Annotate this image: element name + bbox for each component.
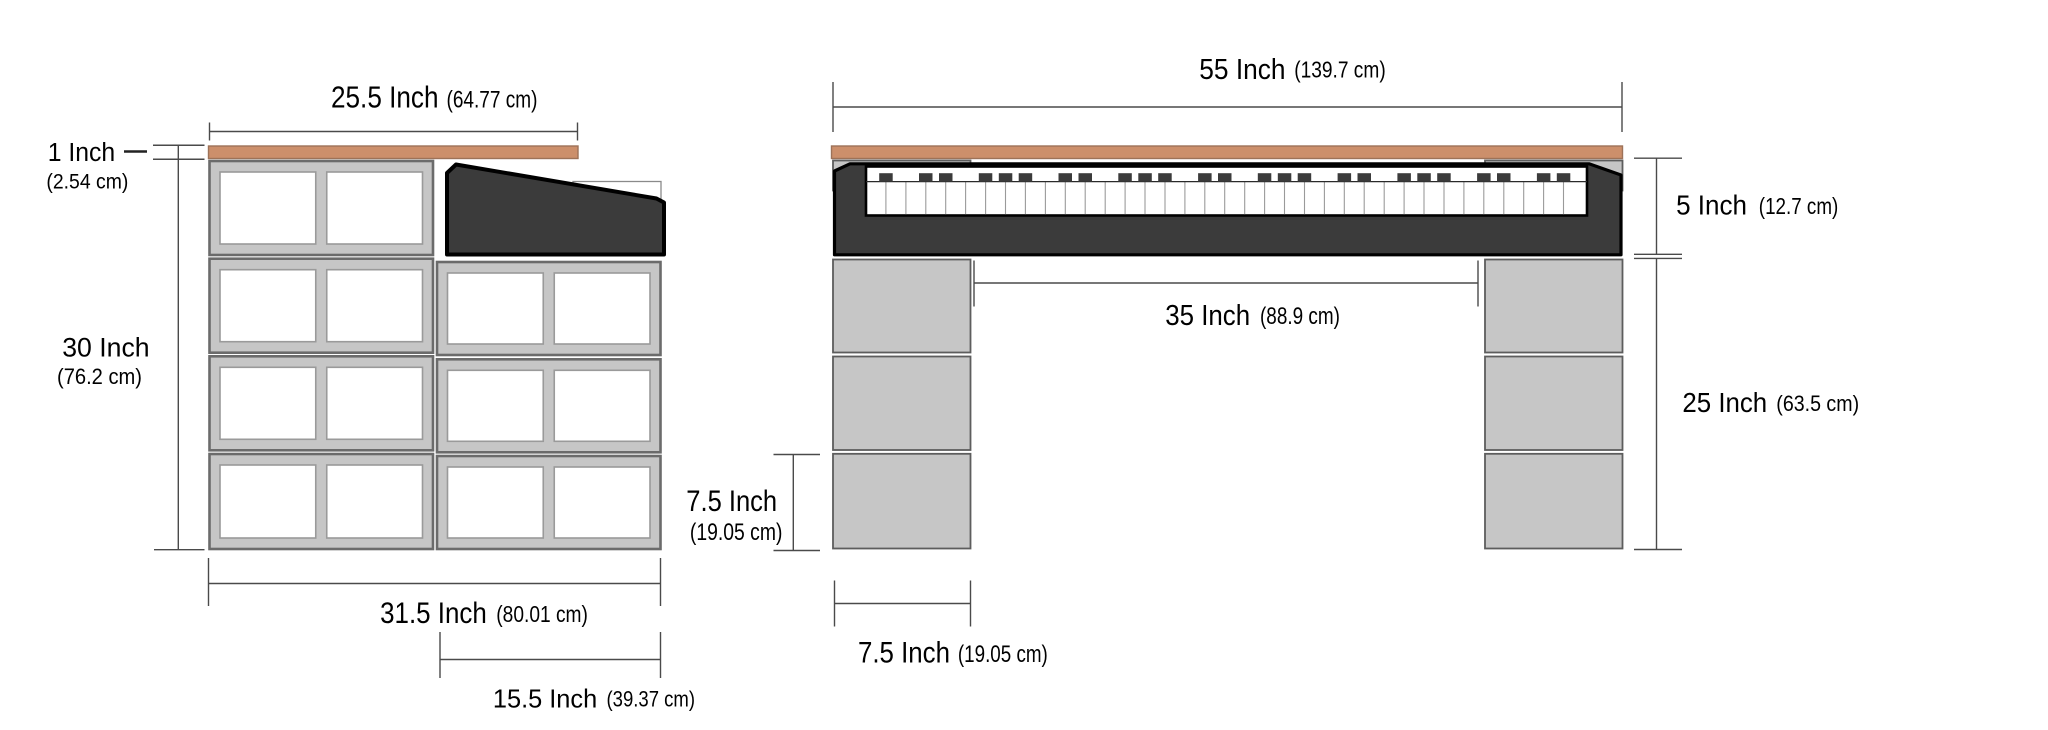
svg-text:7.5 Inch: 7.5 Inch	[858, 637, 950, 670]
svg-text:25.5 Inch: 25.5 Inch	[331, 80, 439, 114]
svg-text:(19.05 cm): (19.05 cm)	[690, 519, 783, 546]
svg-text:30 Inch: 30 Inch	[62, 333, 149, 363]
svg-text:(39.37 cm): (39.37 cm)	[607, 687, 696, 712]
svg-text:(76.2 cm): (76.2 cm)	[57, 364, 142, 389]
svg-text:5 Inch: 5 Inch	[1676, 190, 1747, 221]
svg-text:(63.5 cm): (63.5 cm)	[1776, 391, 1859, 416]
svg-text:(2.54 cm): (2.54 cm)	[46, 170, 128, 194]
svg-text:15.5 Inch: 15.5 Inch	[493, 686, 597, 714]
svg-text:(80.01 cm): (80.01 cm)	[496, 601, 588, 627]
svg-text:(19.05 cm): (19.05 cm)	[958, 641, 1048, 668]
svg-text:(88.9 cm): (88.9 cm)	[1260, 303, 1340, 330]
svg-text:7.5 Inch: 7.5 Inch	[686, 485, 777, 518]
svg-text:31.5 Inch: 31.5 Inch	[380, 597, 487, 630]
svg-text:25 Inch: 25 Inch	[1682, 387, 1767, 418]
svg-text:55 Inch: 55 Inch	[1199, 54, 1285, 86]
svg-text:(139.7 cm): (139.7 cm)	[1294, 57, 1386, 83]
svg-text:(64.77 cm): (64.77 cm)	[447, 87, 538, 114]
svg-text:1 Inch: 1 Inch	[48, 137, 115, 167]
svg-text:(12.7 cm): (12.7 cm)	[1759, 193, 1839, 219]
svg-text:35 Inch: 35 Inch	[1165, 300, 1250, 332]
